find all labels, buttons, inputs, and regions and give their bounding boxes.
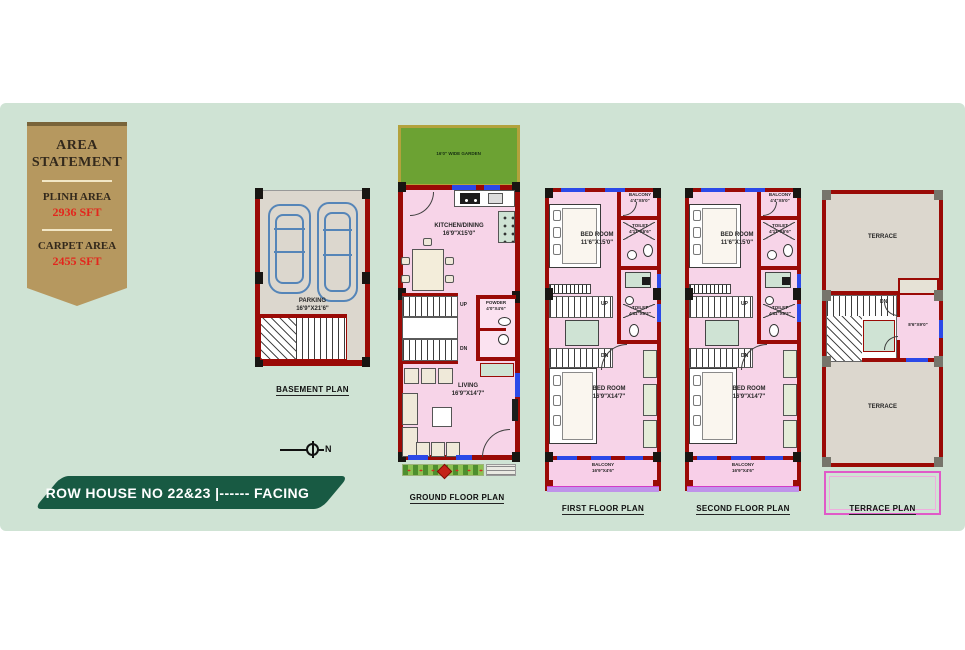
column bbox=[398, 182, 406, 192]
column bbox=[793, 452, 801, 462]
center-table-icon bbox=[432, 407, 452, 427]
shaft bbox=[765, 272, 791, 288]
area-statement-ribbon: AREA STATEMENT PLINH AREA 2936 SFT CARPE… bbox=[27, 122, 127, 306]
pillow bbox=[693, 395, 701, 406]
chair-icon bbox=[445, 275, 454, 283]
bedroom-label: BED ROOM11'6"X15'0" bbox=[703, 232, 771, 247]
wall bbox=[822, 463, 943, 467]
wc-icon bbox=[629, 324, 639, 337]
wall bbox=[657, 188, 661, 488]
column bbox=[685, 188, 693, 198]
window bbox=[456, 455, 472, 460]
wall bbox=[797, 188, 801, 488]
column bbox=[545, 288, 553, 300]
pillow bbox=[693, 210, 701, 221]
wardrobe bbox=[643, 420, 657, 448]
stair-flight bbox=[689, 296, 753, 318]
entry-steps bbox=[486, 464, 516, 476]
bedroom-label: BED ROOM16'9"X14'7" bbox=[573, 386, 645, 401]
pillow bbox=[553, 395, 561, 406]
wall bbox=[402, 361, 458, 364]
wc-icon bbox=[643, 244, 653, 257]
chair-icon bbox=[401, 257, 410, 265]
toilet-label: TOILET4'11"X6'2" bbox=[766, 306, 795, 317]
bed-icon bbox=[549, 368, 597, 444]
wardrobe bbox=[783, 350, 797, 378]
bedroom-label: BED ROOM16'9"X14'7" bbox=[713, 386, 785, 401]
window bbox=[515, 373, 520, 397]
wall bbox=[621, 266, 661, 270]
first-floor-caption: FIRST FLOOR PLAN bbox=[541, 498, 665, 516]
wardrobe bbox=[783, 384, 797, 416]
stair-flight bbox=[402, 296, 458, 317]
living-label: LIVING16'9"X14'7" bbox=[426, 383, 510, 398]
basin-icon bbox=[765, 296, 774, 305]
column bbox=[822, 457, 831, 467]
pillow bbox=[553, 244, 561, 255]
wc-icon bbox=[498, 317, 511, 326]
column bbox=[653, 188, 661, 198]
basin-icon bbox=[498, 334, 509, 345]
column bbox=[255, 272, 263, 284]
ribbon-divider bbox=[42, 180, 112, 182]
sofa-icon bbox=[421, 368, 436, 384]
terrace-plan: TERRACE DN 8'6"X9'0" TERRACE bbox=[822, 190, 943, 520]
column bbox=[362, 272, 370, 284]
second-floor-plan: BALCONY4'4"X5'0" TOILET4'11"X6'6" BED RO… bbox=[685, 188, 801, 494]
duct bbox=[782, 277, 790, 285]
pillow bbox=[553, 375, 561, 386]
wall bbox=[255, 360, 370, 366]
wardrobe-strip bbox=[549, 284, 591, 294]
stair-landing bbox=[402, 317, 458, 339]
column bbox=[255, 188, 263, 199]
balcony-label: BALCONY16'9"X4'6" bbox=[715, 463, 772, 474]
pillow bbox=[553, 227, 561, 238]
column bbox=[685, 452, 693, 462]
north-compass-icon: N bbox=[280, 441, 336, 459]
tv-niche bbox=[512, 399, 518, 421]
pillow bbox=[693, 375, 701, 386]
flower-bed bbox=[402, 464, 484, 476]
column bbox=[793, 188, 801, 198]
window bbox=[906, 358, 928, 362]
column bbox=[653, 452, 661, 462]
window bbox=[797, 274, 801, 288]
carpet-area-value: 2455 SFT bbox=[27, 253, 127, 270]
ground-floor-plan: 16'0" WIDE GARDEN KITCHEN/DINING16'9"X15… bbox=[398, 125, 520, 477]
plinth-area-value: 2936 SFT bbox=[27, 204, 127, 221]
sofa-icon bbox=[402, 393, 418, 425]
wall bbox=[761, 266, 801, 270]
brochure-page: AREA STATEMENT PLINH AREA 2936 SFT CARPE… bbox=[0, 0, 965, 650]
garden: 16'0" WIDE GARDEN bbox=[398, 125, 520, 187]
column bbox=[512, 452, 520, 462]
column bbox=[362, 357, 370, 367]
bed-icon bbox=[689, 368, 737, 444]
bedroom-label: BED ROOM11'6"X15'0" bbox=[563, 232, 631, 247]
pillow bbox=[553, 210, 561, 221]
wall bbox=[476, 357, 516, 361]
wall bbox=[822, 190, 943, 194]
terrace-label: TERRACE bbox=[822, 234, 943, 242]
stove-icon bbox=[460, 193, 480, 204]
window bbox=[701, 188, 725, 192]
stair-treads bbox=[296, 315, 346, 359]
balcony-label: BALCONY16'9"X4'6" bbox=[575, 463, 632, 474]
wardrobe bbox=[643, 384, 657, 416]
garden-label: 16'0" WIDE GARDEN bbox=[437, 152, 481, 158]
column bbox=[934, 190, 943, 200]
first-floor-plan: BALCONY4'4"X5'0" TOILET4'11"X6'6" BED RO… bbox=[545, 188, 661, 494]
column bbox=[545, 188, 553, 198]
second-floor-caption: SECOND FLOOR PLAN bbox=[681, 498, 805, 516]
shaft bbox=[625, 272, 651, 288]
stair-flight bbox=[549, 296, 613, 318]
wc-icon bbox=[769, 324, 779, 337]
powder-label: POWDER4'0"X4'6" bbox=[481, 301, 511, 312]
sofa-icon bbox=[438, 368, 453, 384]
duct bbox=[642, 277, 650, 285]
staircase bbox=[260, 314, 347, 360]
pillow bbox=[693, 244, 701, 255]
column bbox=[793, 288, 801, 300]
balcony-edge bbox=[687, 486, 799, 492]
wardrobe bbox=[783, 420, 797, 448]
column bbox=[545, 452, 553, 462]
window bbox=[797, 304, 801, 322]
balcony-edge bbox=[547, 486, 659, 492]
column bbox=[653, 288, 661, 300]
pillow bbox=[693, 227, 701, 238]
flower-icon bbox=[437, 464, 453, 480]
wall bbox=[621, 216, 661, 220]
toilet-label: TOILET4'11"X6'2" bbox=[626, 306, 655, 317]
plinth-area-label: PLINH AREA bbox=[27, 190, 127, 204]
shaft bbox=[480, 363, 514, 377]
column bbox=[934, 457, 943, 467]
stair-winders bbox=[261, 315, 296, 359]
pillow bbox=[553, 415, 561, 426]
ribbon-top-edge bbox=[27, 122, 127, 126]
kitchen-label: KITCHEN/DINING16'9"X15'0" bbox=[406, 223, 512, 238]
wardrobe bbox=[643, 350, 657, 378]
wall bbox=[480, 328, 506, 331]
banner-text: ROW HOUSE NO 22&23 |------ FACING bbox=[34, 476, 321, 509]
up-label: UP bbox=[601, 302, 608, 307]
up-label: UP bbox=[460, 303, 467, 308]
quilt bbox=[702, 372, 733, 440]
area-statement-title: AREA STATEMENT bbox=[27, 138, 127, 172]
sofa-icon bbox=[404, 368, 419, 384]
column bbox=[934, 290, 943, 301]
car-icon bbox=[317, 202, 358, 302]
stair-winders bbox=[827, 316, 862, 361]
column bbox=[685, 288, 693, 300]
window bbox=[408, 455, 428, 460]
terrace-label: TERRACE bbox=[822, 404, 943, 412]
column bbox=[822, 290, 831, 301]
north-label: N bbox=[325, 444, 332, 454]
basin-icon bbox=[627, 250, 637, 260]
carpet-area-label: CARPET AREA bbox=[27, 239, 127, 253]
window bbox=[745, 188, 765, 192]
car-icon bbox=[268, 204, 311, 294]
title-banner: ROW HOUSE NO 22&23 |------ FACING bbox=[34, 476, 349, 509]
parking-label: PARKING16'9"X21'6" bbox=[263, 298, 362, 313]
ground-floor-caption: GROUND FLOOR PLAN bbox=[396, 487, 518, 505]
shaft bbox=[898, 278, 939, 295]
wc-icon bbox=[783, 244, 793, 257]
wardrobe-strip bbox=[689, 284, 731, 294]
column bbox=[362, 188, 370, 199]
up-label: UP bbox=[741, 302, 748, 307]
basement-plan: PARKING16'9"X21'6" bbox=[255, 188, 370, 368]
basement-plan-caption: BASEMENT PLAN bbox=[253, 379, 372, 397]
wall bbox=[261, 315, 346, 318]
column bbox=[934, 356, 943, 367]
ribbon-divider bbox=[42, 229, 112, 231]
window bbox=[939, 320, 943, 338]
sofa-icon bbox=[431, 442, 445, 457]
wall bbox=[259, 190, 366, 191]
window bbox=[657, 304, 661, 322]
pillow bbox=[693, 415, 701, 426]
chair-icon bbox=[445, 257, 454, 265]
head-room-dims: 8'6"X9'0" bbox=[902, 323, 934, 329]
chair-icon bbox=[401, 275, 410, 283]
terrace-plan-caption: TERRACE PLAN bbox=[818, 498, 947, 516]
dn-label: DN bbox=[460, 347, 467, 352]
window bbox=[561, 188, 585, 192]
compass-needle bbox=[312, 441, 314, 458]
chair-icon bbox=[423, 238, 432, 246]
window bbox=[657, 274, 661, 288]
stair-landing bbox=[705, 320, 739, 346]
dining-table-icon bbox=[412, 249, 444, 291]
basin-icon bbox=[767, 250, 777, 260]
sink-icon bbox=[488, 193, 503, 204]
stair-flight bbox=[402, 339, 458, 361]
quilt bbox=[562, 372, 593, 440]
window bbox=[605, 188, 625, 192]
column bbox=[822, 190, 831, 200]
wall bbox=[761, 216, 801, 220]
stair-landing bbox=[565, 320, 599, 346]
column bbox=[822, 356, 831, 367]
basin-icon bbox=[625, 296, 634, 305]
